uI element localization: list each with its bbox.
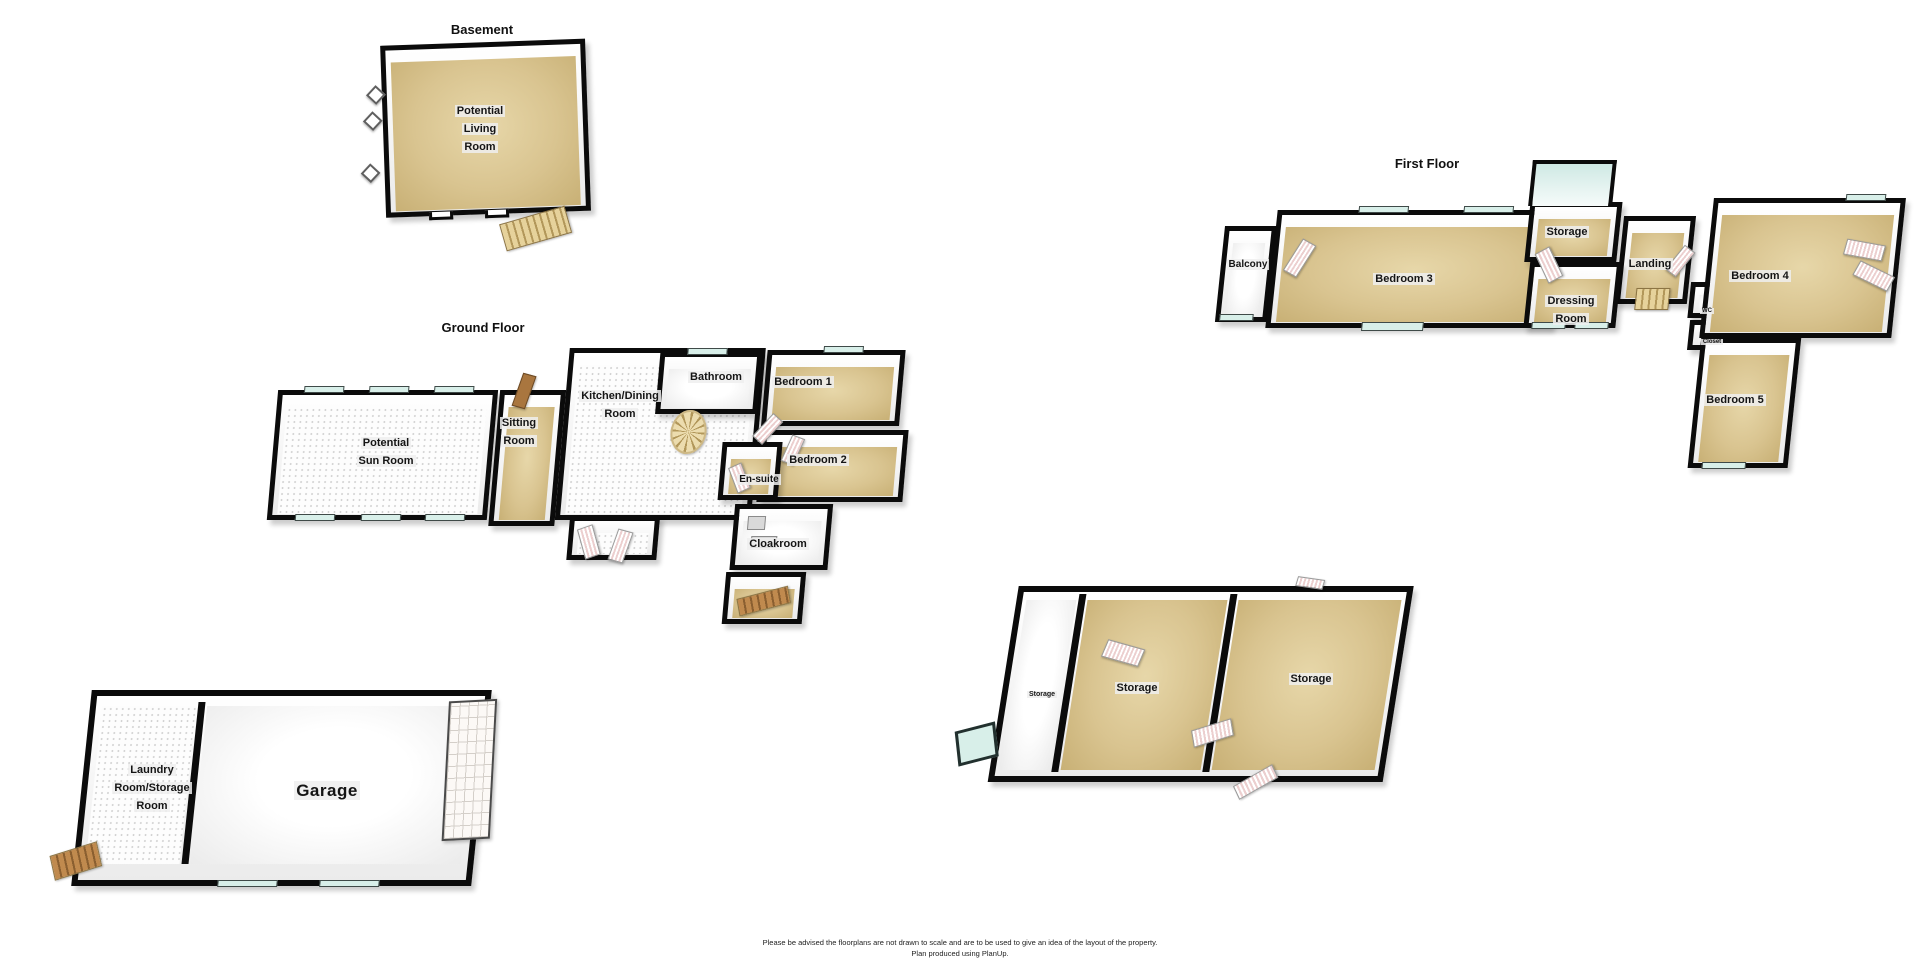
window-icon bbox=[1219, 314, 1254, 321]
room-sitting-room bbox=[488, 390, 566, 526]
window-icon bbox=[295, 514, 336, 521]
room-label-cloakroom: Cloakroom bbox=[741, 534, 815, 552]
room-label-garage: Garage bbox=[277, 781, 377, 801]
window-icon bbox=[319, 880, 380, 887]
ground-floor-title: Ground Floor bbox=[413, 320, 553, 335]
garage-door-icon bbox=[442, 699, 498, 841]
doorway-notch-icon bbox=[429, 211, 453, 220]
window-icon bbox=[1846, 194, 1887, 201]
basement-title: Basement bbox=[412, 22, 552, 37]
window-icon bbox=[434, 386, 475, 393]
room-label-laundry-storage: Laundry Room/Storage Room bbox=[110, 760, 194, 814]
basement-section: Basement Potential Living Room bbox=[375, 18, 655, 268]
ground-floor-section: Ground Floor bbox=[268, 318, 958, 658]
room-label-bedroom-4: Bedroom 4 bbox=[1722, 266, 1798, 284]
window-icon bbox=[687, 348, 728, 355]
window-icon bbox=[361, 514, 402, 521]
first-floor-title: First Floor bbox=[1362, 156, 1492, 171]
window-icon bbox=[369, 386, 410, 393]
garage-section: Laundry Room/Storage Room Garage bbox=[88, 688, 658, 918]
disclaimer-line-1: Please be advised the floorplans are not… bbox=[0, 938, 1920, 949]
room-label-storage-small: Storage bbox=[1022, 683, 1062, 701]
room-label-potential-sun-room: Potential Sun Room bbox=[354, 433, 418, 469]
outbuilding-section: Storage Storage Storage bbox=[965, 578, 1495, 818]
room-label-dressing-room: Dressing Room bbox=[1541, 291, 1601, 327]
casement-window-icon bbox=[361, 163, 381, 183]
room-label-bedroom-2: Bedroom 2 bbox=[780, 450, 856, 468]
bedroom5-floor bbox=[1698, 355, 1789, 462]
room-label-sitting-room: Sitting Room bbox=[496, 413, 542, 449]
window-icon bbox=[1701, 462, 1746, 469]
toilet-icon bbox=[747, 516, 766, 530]
room-label-balcony: Balcony bbox=[1222, 254, 1274, 272]
disclaimer-line-2: Plan produced using PlanUp. bbox=[0, 949, 1920, 960]
room-label-potential-living-room: Potential Living Room bbox=[447, 101, 513, 155]
room-label-landing: Landing bbox=[1622, 254, 1678, 272]
bay-window-icon bbox=[1361, 322, 1424, 331]
window-icon bbox=[217, 880, 278, 887]
first-floor-section: First Floor bbox=[1215, 128, 1920, 508]
floorplan-page: Basement Potential Living Room Ground Fl… bbox=[0, 0, 1920, 960]
window-icon bbox=[1358, 206, 1409, 213]
room-label-closet: Closet bbox=[1695, 330, 1729, 348]
window-icon bbox=[823, 346, 864, 353]
room-label-bedroom-5: Bedroom 5 bbox=[1697, 390, 1773, 408]
window-icon bbox=[425, 514, 466, 521]
window-icon bbox=[1463, 206, 1514, 213]
room-label-storage-right: Storage bbox=[1285, 669, 1337, 687]
room-label-kitchen-dining: Kitchen/Dining Room bbox=[572, 386, 668, 422]
room-label-storage-first: Storage bbox=[1539, 222, 1595, 240]
disclaimer: Please be advised the floorplans are not… bbox=[0, 938, 1920, 959]
room-label-bedroom-1: Bedroom 1 bbox=[765, 372, 841, 390]
room-label-en-suite: En-suite bbox=[729, 469, 789, 487]
outbuilding-plan bbox=[927, 578, 1495, 818]
room-label-bedroom-3: Bedroom 3 bbox=[1366, 269, 1442, 287]
basement-plan bbox=[375, 32, 663, 262]
room-label-wc: WC bbox=[1696, 299, 1718, 317]
room-label-storage-mid: Storage bbox=[1111, 678, 1163, 696]
first-floor-plan bbox=[1177, 150, 1920, 508]
window-icon bbox=[304, 386, 345, 393]
ladder-stairs-icon bbox=[1634, 288, 1670, 310]
dormer-window-icon bbox=[1528, 160, 1617, 206]
room-label-bathroom: Bathroom bbox=[681, 367, 751, 385]
casement-window-icon bbox=[363, 111, 383, 131]
doorway-notch-icon bbox=[485, 209, 509, 218]
